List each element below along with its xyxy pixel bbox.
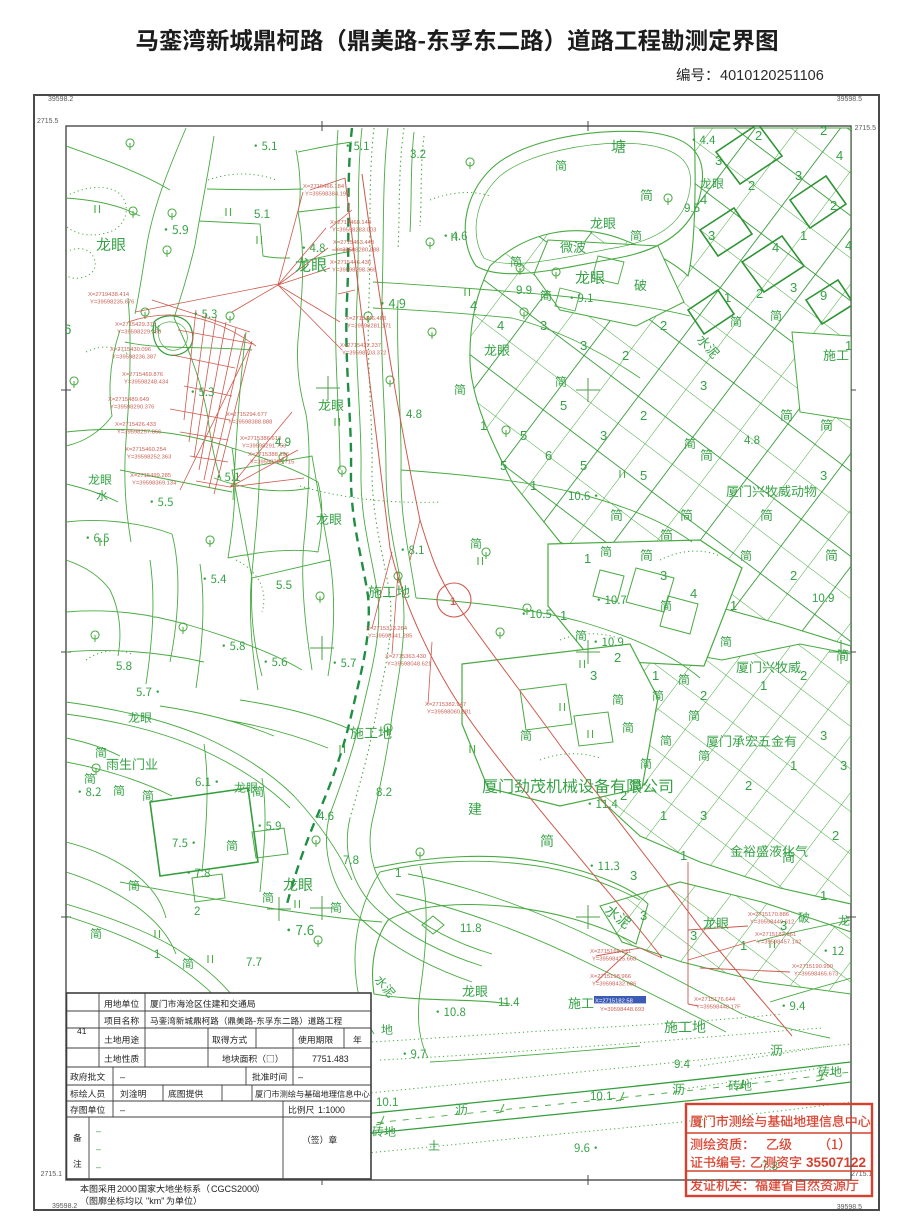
svg-text:5: 5 [500,458,507,473]
svg-text:X=2719438.414: X=2719438.414 [88,292,130,298]
svg-text:1: 1 [730,598,737,613]
svg-text:1: 1 [584,551,591,566]
svg-text:4.8: 4.8 [406,409,422,421]
svg-text:Y=39598425.668: Y=39598425.668 [592,957,636,963]
svg-text:3: 3 [700,378,707,393]
svg-text:9.4: 9.4 [674,1059,691,1071]
svg-text:3: 3 [640,908,647,923]
svg-text:X=2715469.876: X=2715469.876 [122,372,163,378]
svg-text:4.9: 4.9 [275,437,291,449]
svg-text:X=2715463.443: X=2715463.443 [333,240,374,246]
svg-text:Y=39598236.387: Y=39598236.387 [112,355,156,361]
svg-text:X=2715198.966: X=2715198.966 [590,974,631,980]
svg-text:1: 1 [820,888,827,903]
svg-text:2: 2 [620,788,627,803]
svg-text:3: 3 [630,868,637,883]
svg-text:3: 3 [690,928,697,943]
svg-text:4: 4 [700,192,707,207]
svg-text:Y=39598449.612: Y=39598449.612 [750,920,794,926]
svg-text:5: 5 [580,458,587,473]
svg-text:–: – [96,1144,101,1154]
svg-text:Y=39598465.673: Y=39598465.673 [794,972,838,978]
svg-text:Y=39598341.285: Y=39598341.285 [368,634,412,640]
svg-text:2: 2 [748,178,755,193]
svg-text:Y=39598281.171: Y=39598281.171 [347,324,391,330]
svg-text:10.1: 10.1 [590,1091,612,1103]
svg-text:X=2715499.285: X=2715499.285 [130,473,171,479]
svg-text:–: – [298,1072,303,1082]
svg-text:3: 3 [820,728,827,743]
svg-text:–: – [120,1105,125,1115]
svg-text:Y=39598060.981: Y=39598060.981 [427,710,471,716]
svg-text:–: – [96,1162,101,1172]
svg-text:1: 1 [395,868,401,880]
svg-text:Y=39598448.17F: Y=39598448.17F [696,1005,741,1011]
svg-text:2715.5: 2715.5 [37,118,59,125]
svg-text:1: 1 [790,758,797,773]
svg-text:4010120251106: 4010120251106 [720,68,824,84]
svg-text:5.8: 5.8 [116,661,132,673]
svg-text:X=2715313.264: X=2715313.264 [366,626,408,632]
svg-text:3: 3 [820,468,827,483]
svg-text:39598.2: 39598.2 [52,1203,77,1210]
svg-text:Y=39598048.621: Y=39598048.621 [387,662,431,668]
svg-text:3: 3 [700,808,707,823]
svg-text:7.8: 7.8 [343,855,359,867]
svg-text:5.5: 5.5 [276,580,292,592]
svg-text:2: 2 [640,408,647,423]
svg-text:X=2715446.483: X=2715446.483 [345,316,386,322]
svg-text:X=2715460.254: X=2715460.254 [125,447,167,453]
svg-text:2: 2 [832,828,839,843]
svg-text:Y=39598257.866: Y=39598257.866 [117,430,161,436]
svg-text:Y=39598448.693: Y=39598448.693 [600,1007,644,1013]
svg-text:6: 6 [545,448,552,463]
svg-text:X=2715466.184: X=2715466.184 [303,184,345,190]
svg-text:X=2715182.061: X=2715182.061 [755,932,796,938]
svg-text:2000: 2000 [117,1184,137,1194]
svg-text:1: 1 [530,478,537,493]
svg-text:9.9: 9.9 [516,285,532,297]
svg-text:7751.483: 7751.483 [312,1054,349,1064]
svg-text:X=2715430.096: X=2715430.096 [110,347,151,353]
svg-text:3: 3 [780,918,787,933]
svg-text:X=2715429.373: X=2715429.373 [115,322,156,328]
svg-text:4.8: 4.8 [744,435,760,447]
svg-text:–: – [96,1126,101,1136]
svg-text:Y=39598369.134: Y=39598369.134 [132,481,177,487]
svg-text:2: 2 [745,778,752,793]
svg-text:1: 1 [724,290,731,305]
svg-text:1: 1 [740,938,747,953]
svg-text:3: 3 [715,153,722,168]
svg-text:Y=39598384.199: Y=39598384.199 [305,192,349,198]
svg-text:Y=39598248.434: Y=39598248.434 [124,380,169,386]
svg-text:39598.5: 39598.5 [837,1204,862,1211]
svg-text:X=2715388.196: X=2715388.196 [248,452,289,458]
svg-text:"km": "km" [146,1196,164,1206]
svg-text:2: 2 [830,198,837,213]
svg-text:1: 1 [652,668,659,683]
svg-text:1:1000: 1:1000 [318,1105,345,1115]
svg-text:41: 41 [77,1026,87,1036]
svg-text:2715.1: 2715.1 [851,1171,873,1178]
svg-text:X=2715169.571: X=2715169.571 [590,949,631,955]
svg-text:35507122: 35507122 [806,1155,866,1170]
svg-text:Y=39598290.376: Y=39598290.376 [110,405,154,411]
svg-text:Y=39598235.676: Y=39598235.676 [90,300,134,306]
svg-text:X=2715446.436: X=2715446.436 [330,260,371,266]
svg-text:4: 4 [497,318,504,333]
svg-text:Y=39598283.003: Y=39598283.003 [332,228,376,234]
svg-text:2: 2 [194,906,200,918]
svg-text:3.2: 3.2 [410,149,426,161]
svg-text:2715.1: 2715.1 [41,1171,63,1178]
svg-text:Y=39598457.142: Y=39598457.142 [757,940,801,946]
svg-text:X=2715182.58: X=2715182.58 [595,999,633,1005]
svg-text:10.1: 10.1 [376,1097,398,1109]
svg-text:39598.5: 39598.5 [837,96,862,103]
svg-text:5: 5 [640,468,647,483]
svg-text:CGCS2000: CGCS2000 [211,1184,257,1194]
svg-text:Y=39598280.988: Y=39598280.988 [335,248,379,254]
svg-text:3: 3 [590,668,597,683]
svg-text:2: 2 [790,568,797,583]
svg-text:3: 3 [600,428,607,443]
svg-text:3: 3 [795,168,802,183]
svg-text:4.6: 4.6 [318,811,334,823]
svg-text:X=2715468.144: X=2715468.144 [330,220,372,226]
svg-text:3: 3 [790,280,797,295]
svg-text:Y=39598432.686: Y=39598432.686 [592,982,636,988]
svg-text:2: 2 [800,668,807,683]
svg-text:3: 3 [660,568,667,583]
svg-text:5: 5 [520,428,527,443]
svg-text:2: 2 [700,688,707,703]
svg-text:Y=39598388.888: Y=39598388.888 [228,420,272,426]
svg-text:4: 4 [470,298,477,313]
svg-text:1: 1 [760,678,767,693]
svg-text:2: 2 [756,286,763,301]
svg-text:1: 1 [800,228,807,243]
svg-text:Y=39598295.715: Y=39598295.715 [250,460,294,466]
svg-text:1: 1 [560,608,567,623]
svg-text:4: 4 [690,586,697,601]
svg-text:2: 2 [755,128,762,143]
svg-text:3: 3 [840,758,847,773]
svg-text:1: 1 [660,808,667,823]
svg-text:9.5: 9.5 [684,203,700,215]
svg-text:X=2715294.677: X=2715294.677 [226,412,267,418]
svg-text:X=2715382.947: X=2715382.947 [425,702,466,708]
svg-text:4: 4 [836,148,843,163]
svg-text:9: 9 [820,288,827,303]
svg-text:11.4: 11.4 [498,997,520,1009]
svg-text:Y=39598252.363: Y=39598252.363 [127,455,171,461]
svg-text:5: 5 [560,398,567,413]
svg-text:2: 2 [660,318,667,333]
svg-text:X=2715190.990: X=2715190.990 [792,964,833,970]
svg-text:11.8: 11.8 [460,923,482,935]
svg-text:5.1: 5.1 [254,209,270,221]
svg-text:X=2715176.644: X=2715176.644 [694,997,736,1003]
svg-text:X=2715489.649: X=2715489.649 [108,397,149,403]
svg-text:10.9: 10.9 [812,593,834,605]
svg-text:2: 2 [622,348,629,363]
svg-text:3: 3 [540,318,547,333]
svg-text:2: 2 [614,650,621,665]
svg-text:1: 1 [154,949,160,961]
svg-text:4: 4 [772,240,779,255]
svg-text:X=2715363.430: X=2715363.430 [385,654,426,660]
svg-text:2715.5: 2715.5 [855,125,877,132]
svg-text:1: 1 [480,418,487,433]
svg-text:X=2715422.237: X=2715422.237 [340,343,381,349]
svg-text:–: – [120,1072,125,1082]
svg-text:1: 1 [450,596,456,608]
svg-text:3: 3 [708,228,715,243]
svg-text:3: 3 [580,338,587,353]
svg-text:39598.2: 39598.2 [48,96,73,103]
svg-text:8.2: 8.2 [376,787,392,799]
svg-text:7.7: 7.7 [246,957,262,969]
svg-text:Y=39598298.366: Y=39598298.366 [332,268,376,274]
svg-text:X=2715426.433: X=2715426.433 [115,422,156,428]
svg-text:1: 1 [680,848,687,863]
svg-text:Y=39598203.372: Y=39598203.372 [342,351,386,357]
